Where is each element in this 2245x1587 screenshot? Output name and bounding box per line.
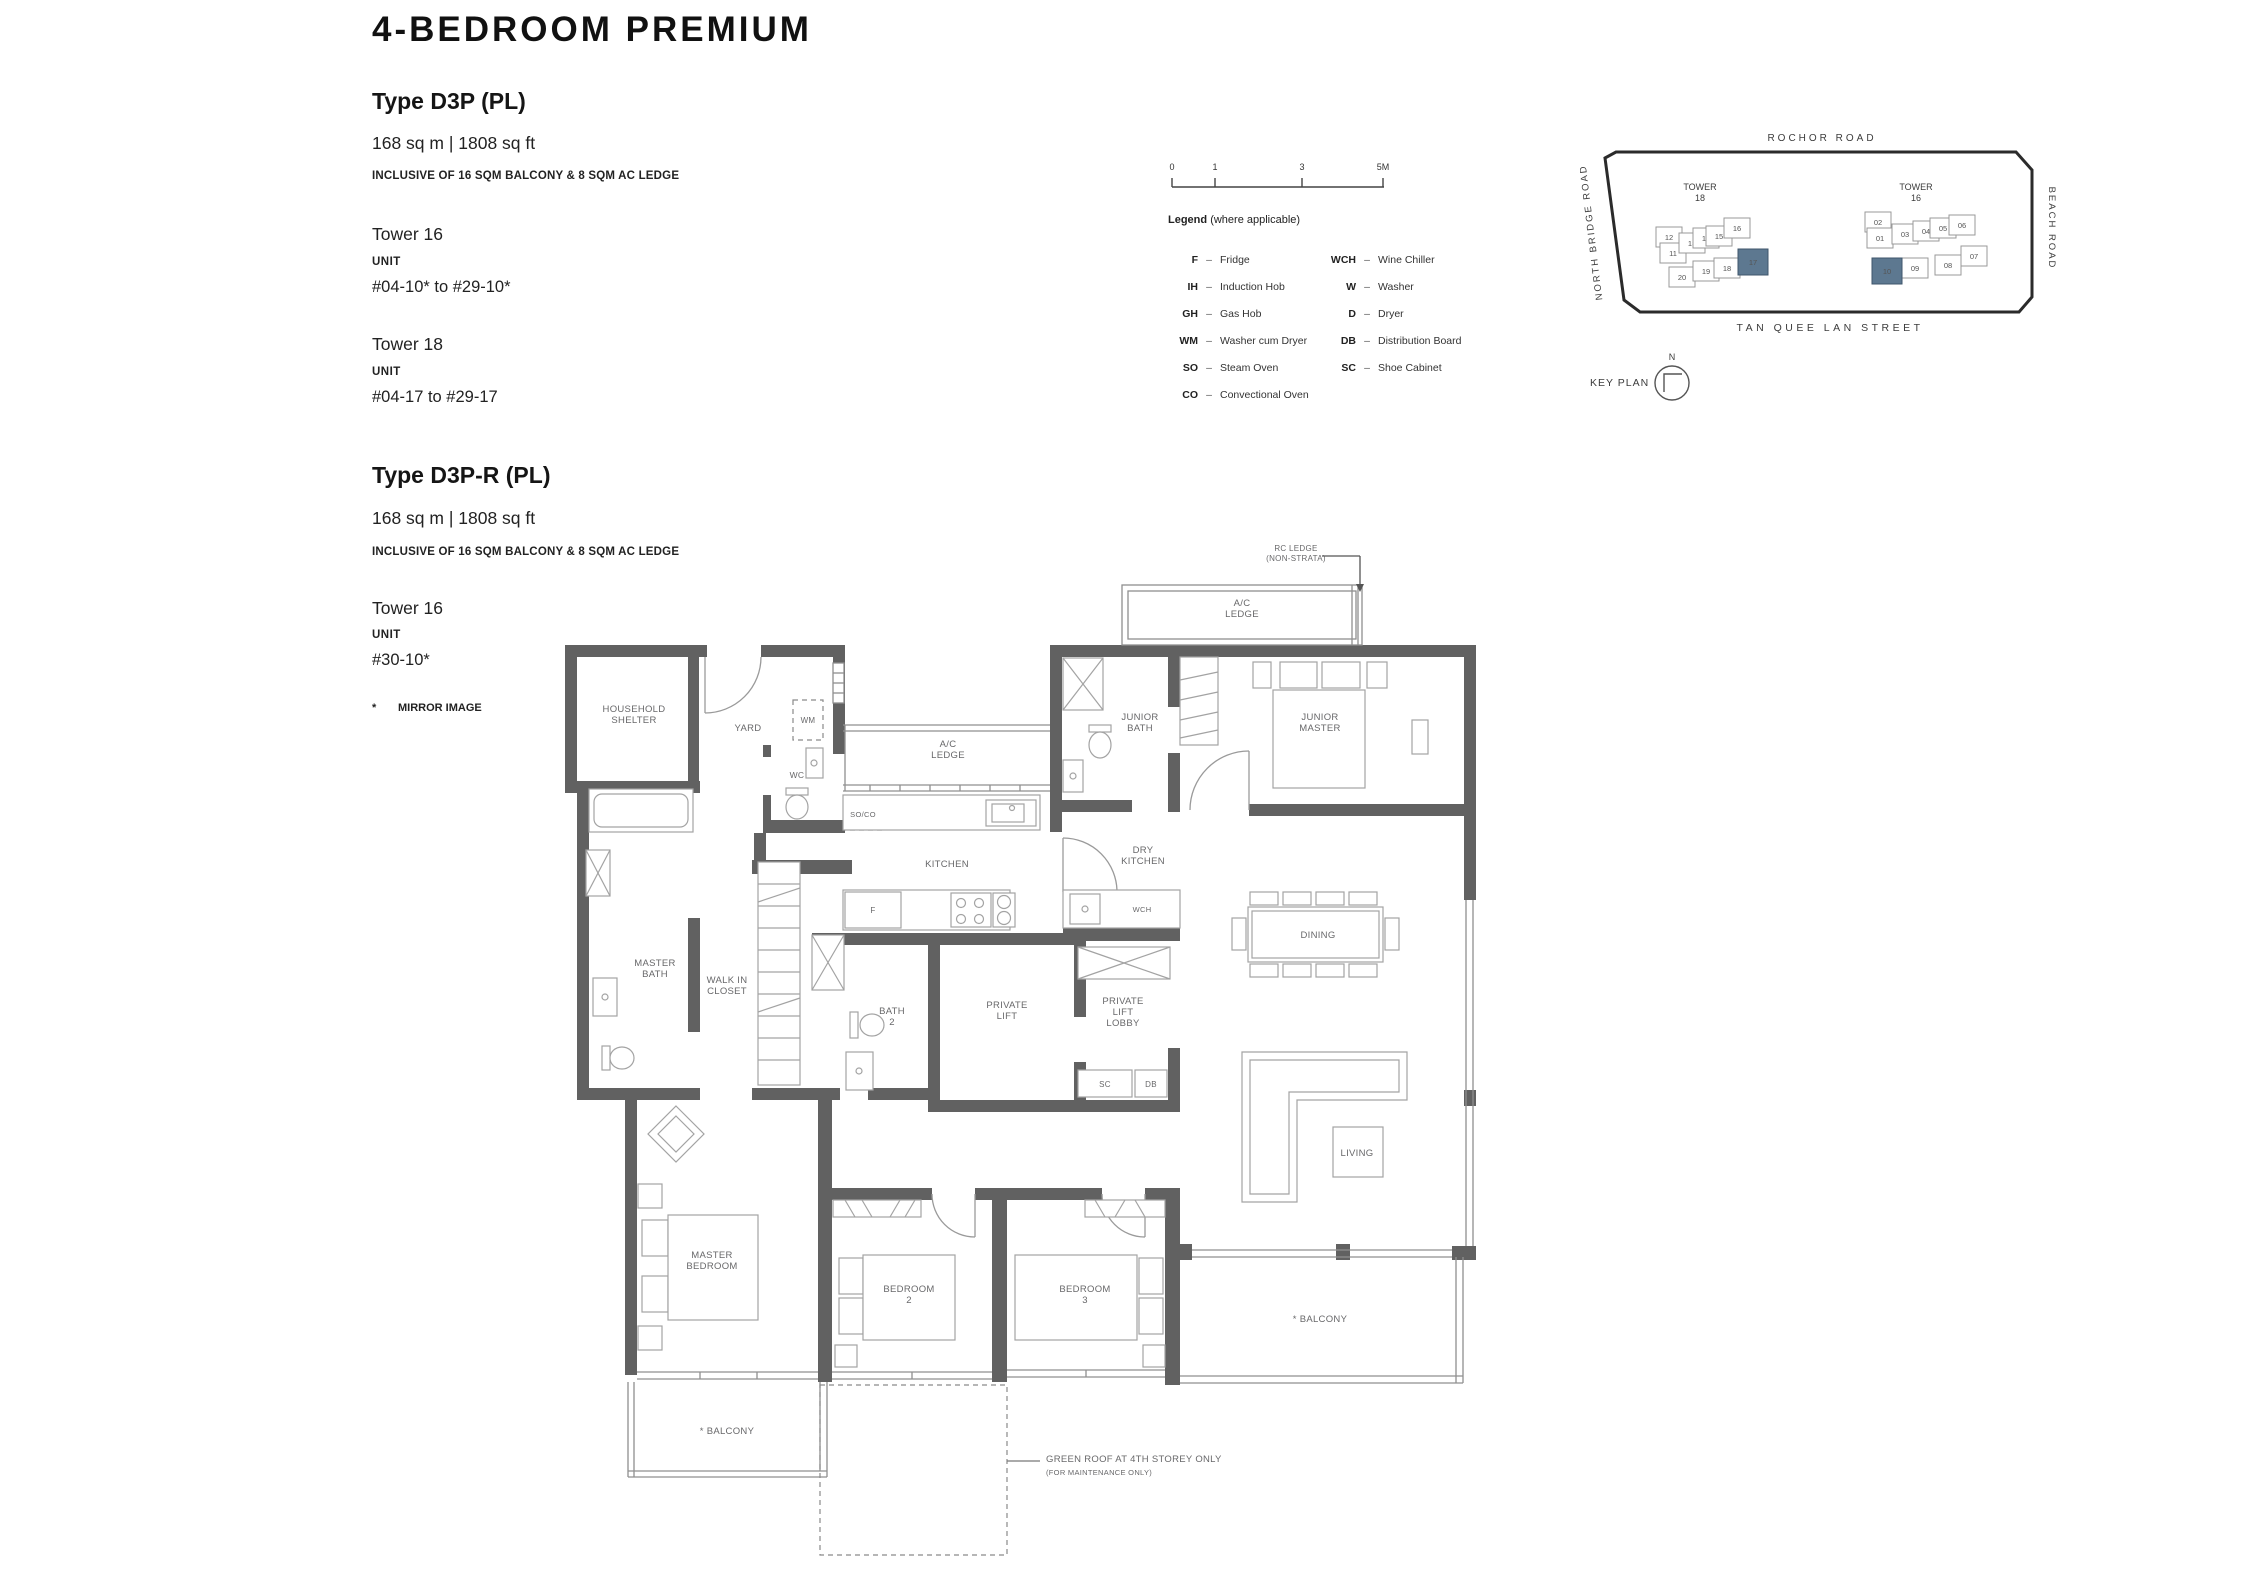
keyplan-unit-number: 18 [1723,264,1731,273]
scale-bar-number: 5M [1377,162,1390,172]
road-bottom-label: TAN QUEE LAN STREET [1736,322,1923,334]
mirror-star: * [372,702,398,714]
keyplan-unit-number: 05 [1939,224,1947,233]
legend-dash: – [1356,254,1378,266]
legend-row: D–Dryer [1326,308,1404,320]
plan-room-label: GREEN ROOF AT 4TH STOREY ONLY [1046,1454,1222,1465]
keyplan-unit-number: 09 [1911,264,1919,273]
keyplan-unit-number: 03 [1901,230,1909,239]
legend-dash: – [1198,335,1220,347]
bed-3 [1015,1255,1137,1340]
plan-room-label: MASTERBEDROOM [686,1250,737,1272]
plan-room-label: KITCHEN [925,859,969,870]
road-left-label: NORTH BRIDGE ROAD [1580,164,1605,301]
tower-16-name: Tower 16 [372,224,443,245]
scale-bar-number: 1 [1212,162,1217,172]
plan-room-label: MASTERBATH [634,958,675,980]
legend-row: CO–Convectional Oven [1168,389,1309,401]
scale-bar: 0135M [1160,150,1410,195]
legend-key: WCH [1326,254,1356,266]
keyplan-unit-number: 17 [1749,258,1757,267]
legend-key: F [1168,254,1198,266]
legend-dash: – [1198,362,1220,374]
green-roof-outline [820,1385,1007,1555]
keyplan-unit-number: 12 [1665,233,1673,242]
legend-dash: – [1356,335,1378,347]
keyplan-unit-number: 15 [1715,232,1723,241]
legend-value: Gas Hob [1220,308,1261,320]
tower-18-range: #04-17 to #29-17 [372,388,498,407]
legend-key: D [1326,308,1356,320]
plan-room-label: DINING [1300,930,1335,941]
legend-value: Distribution Board [1378,335,1461,347]
tower-18-unit-label: UNIT [372,366,401,378]
tower-16-unit-label: UNIT [372,256,401,268]
plan-room-label: JUNIORMASTER [1299,712,1340,734]
svg-text:18: 18 [1695,193,1705,203]
keyplan-unit-number: 19 [1702,267,1710,276]
keyplan-unit-number: 08 [1944,261,1952,270]
legend-row: IH–Induction Hob [1168,281,1285,293]
legend-value: Convectional Oven [1220,389,1309,401]
legend-dash: – [1356,281,1378,293]
type-d3p-area: 168 sq m | 1808 sq ft [372,133,535,154]
plan-room-label: LIVING [1341,1148,1374,1159]
type-d3p-r-area: 168 sq m | 1808 sq ft [372,508,535,529]
key-plan: ROCHOR ROAD NORTH BRIDGE ROAD BEACH ROAD… [1580,118,2125,423]
plan-room-label: WC [790,770,805,780]
plan-room-label: * BALCONY [700,1426,755,1437]
legend-row: WCH–Wine Chiller [1326,254,1435,266]
legend-value: Washer [1378,281,1414,293]
plan-room-label: YARD [735,723,762,734]
plan-room-label: JUNIORBATH [1121,712,1158,734]
plan-room-label: DB [1145,1080,1157,1089]
keyplan-unit-number: 04 [1922,227,1930,236]
mirror-text: MIRROR IMAGE [398,702,482,714]
tower-16-range: #04-10* to #29-10* [372,278,511,297]
legend-value: Fridge [1220,254,1250,266]
legend-dash: – [1198,389,1220,401]
plan-room-label: HOUSEHOLDSHELTER [603,704,666,726]
tower-18-name: Tower 18 [372,334,443,355]
keyplan-unit-number: 11 [1669,249,1677,258]
legend-row: DB–Distribution Board [1326,335,1461,347]
legend-value: Washer cum Dryer [1220,335,1307,347]
legend-dash: – [1198,308,1220,320]
legend-key: GH [1168,308,1198,320]
floor-plan-drawing: RC LEDGE(NON-STRATA)A/CLEDGEHOUSEHOLDSHE… [555,540,1515,1587]
plan-room-label: F [870,906,875,915]
plan-room-label: RC LEDGE(NON-STRATA) [1266,544,1326,563]
plan-room-label: A/CLEDGE [931,739,965,761]
legend-title: Legend (where applicable) [1168,214,1498,226]
keyplan-unit-number: 02 [1874,218,1882,227]
road-right-label: BEACH ROAD [2046,187,2057,270]
scale-bar-number: 0 [1169,162,1174,172]
compass-north-label: N [1669,352,1676,362]
plan-room-label: SO/CO [850,810,876,819]
legend-value: Wine Chiller [1378,254,1435,266]
plan-room-label: PRIVATELIFT [986,1000,1027,1022]
legend-row: W–Washer [1326,281,1414,293]
legend-key: W [1326,281,1356,293]
plan-room-label: PRIVATELIFTLOBBY [1102,996,1143,1029]
keyplan-unit-number: 07 [1970,252,1978,261]
tower-16b-unit-label: UNIT [372,629,401,641]
plan-room-label: * BALCONY [1293,1314,1348,1325]
type-d3p-inclusive: INCLUSIVE OF 16 SQM BALCONY & 8 SQM AC L… [372,170,679,182]
plan-room-label: WM [801,716,816,725]
legend-key: WM [1168,335,1198,347]
key-plan-label: KEY PLAN [1590,377,1649,389]
legend-dash: – [1356,308,1378,320]
scale-bar-number: 3 [1299,162,1304,172]
mirror-image-note: *MIRROR IMAGE [372,702,482,714]
legend-row: SO–Steam Oven [1168,362,1278,374]
compass-needle-icon [1664,374,1682,392]
keyplan-unit-number: 20 [1678,273,1686,282]
tower-16b-name: Tower 16 [372,598,443,619]
legend-value: Steam Oven [1220,362,1278,374]
legend-row: GH–Gas Hob [1168,308,1261,320]
plan-room-label: A/CLEDGE [1225,598,1259,620]
plan-room-label: (FOR MAINTENANCE ONLY) [1046,1468,1152,1477]
keyplan-unit-number: 06 [1958,221,1966,230]
legend: Legend (where applicable) F–FridgeIH–Ind… [1168,214,1498,414]
jm-bed [1273,690,1365,788]
page-title: 4-BEDROOM PREMIUM [372,10,812,50]
plan-room-label: WALK INCLOSET [707,975,748,997]
legend-row: SC–Shoe Cabinet [1326,362,1442,374]
keyplan-unit-number: 16 [1733,224,1741,233]
keyplan-unit-number: 10 [1883,267,1891,276]
keyplan-unit-number: 01 [1876,234,1884,243]
legend-key: SO [1168,362,1198,374]
plan-room-label: DRYKITCHEN [1121,845,1165,867]
legend-dash: – [1356,362,1378,374]
legend-row: WM–Washer cum Dryer [1168,335,1307,347]
legend-value: Dryer [1378,308,1404,320]
legend-dash: – [1198,281,1220,293]
compass-icon [1655,366,1689,400]
legend-key: CO [1168,389,1198,401]
type-d3p-heading: Type D3P (PL) [372,88,526,115]
legend-key: DB [1326,335,1356,347]
tower-18-label: TOWER [1683,182,1717,192]
legend-dash: – [1198,254,1220,266]
tower-16-label: TOWER [1899,182,1933,192]
legend-value: Induction Hob [1220,281,1285,293]
tower-16b-range: #30-10* [372,651,430,670]
type-d3p-r-heading: Type D3P-R (PL) [372,462,550,489]
legend-key: IH [1168,281,1198,293]
road-top-label: ROCHOR ROAD [1767,133,1876,144]
legend-key: SC [1326,362,1356,374]
svg-text:16: 16 [1911,193,1921,203]
legend-row: F–Fridge [1168,254,1250,266]
plan-room-label: WCH [1133,905,1152,914]
legend-value: Shoe Cabinet [1378,362,1442,374]
floor-plan-page: 4-BEDROOM PREMIUM Type D3P (PL) 168 sq m… [0,0,2245,1587]
plan-room-label: SC [1099,1080,1111,1089]
